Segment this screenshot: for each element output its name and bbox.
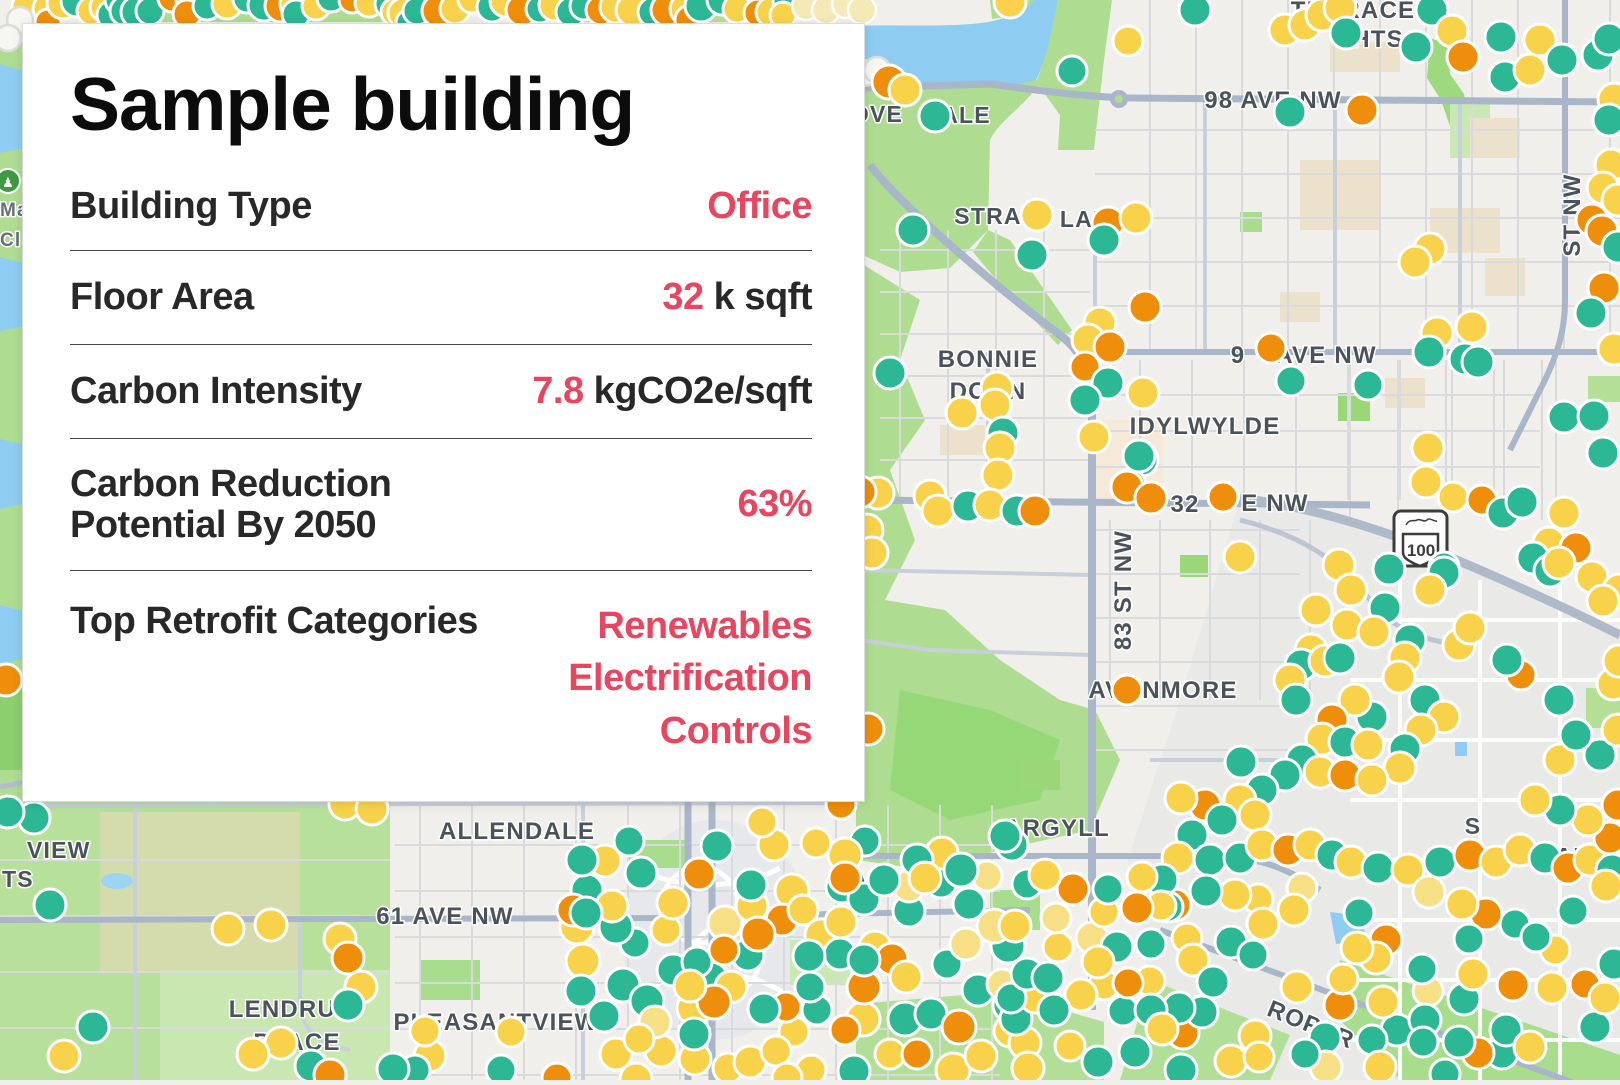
svg-text:61 AVE NW: 61 AVE NW xyxy=(376,903,514,930)
svg-text:IDYLWYLDE: IDYLWYLDE xyxy=(1130,413,1281,440)
svg-text:S: S xyxy=(1465,813,1482,839)
svg-text:32: 32 xyxy=(1170,491,1199,518)
svg-text:♟: ♟ xyxy=(2,175,14,190)
svg-text:Cl: Cl xyxy=(0,230,21,251)
svg-text:9: 9 xyxy=(1231,342,1246,369)
svg-text:83 ST NW: 83 ST NW xyxy=(1110,530,1137,650)
svg-text:BONNIE: BONNIE xyxy=(938,346,1039,373)
svg-text:ALLENDALE: ALLENDALE xyxy=(439,818,595,845)
svg-text:TS: TS xyxy=(2,866,34,892)
svg-text:VIEW: VIEW xyxy=(27,837,91,863)
svg-text:STRA: STRA xyxy=(954,203,1021,229)
svg-text:E NW: E NW xyxy=(1241,490,1308,517)
